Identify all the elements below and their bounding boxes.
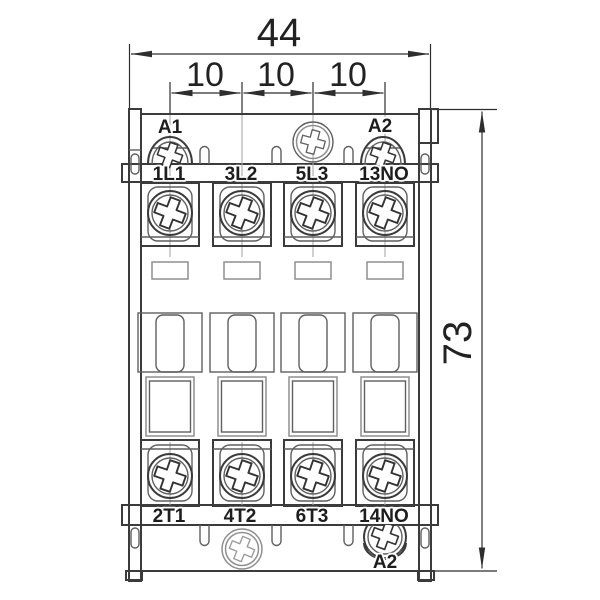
terminal-label-1l1: 1L1 [153,164,186,185]
pole-chamber-3 [281,262,345,436]
dim-overall-height-value: 73 [436,321,480,366]
coil-label-a2-top: A2 [368,116,392,137]
dim-pitch-2-value: 10 [257,56,295,94]
mounting-ear-right [419,109,438,143]
dim-overall-height: 73 [433,110,497,572]
pole-chamber-4 [353,262,417,436]
coil-label-a1: A1 [158,117,183,138]
pole-chamber-2 [210,262,274,436]
top-separator-tabs [200,147,353,165]
coil-label-a2-bottom: A2 [373,552,397,573]
terminal-label-4t2: 4T2 [224,506,257,527]
pole-chamber-1 [138,262,202,436]
dim-overall-width-value: 44 [257,11,302,55]
terminal-label-2t1: 2T1 [153,506,186,527]
fixing-screw-bottom-icon [222,529,262,569]
terminal-label-14no: 14NO [359,506,409,527]
terminal-label-5l3: 5L3 [296,164,329,185]
contactor-dimension-drawing: 44 10 10 10 73 [0,0,600,600]
dim-pitch-3-value: 10 [329,56,367,94]
dim-terminal-pitch: 10 10 10 [170,56,385,113]
terminal-label-3l2: 3L2 [225,164,258,185]
terminal-label-13no: 13NO [359,164,409,185]
dim-pitch-1-value: 10 [186,56,224,94]
terminal-label-6t3: 6T3 [296,506,329,527]
